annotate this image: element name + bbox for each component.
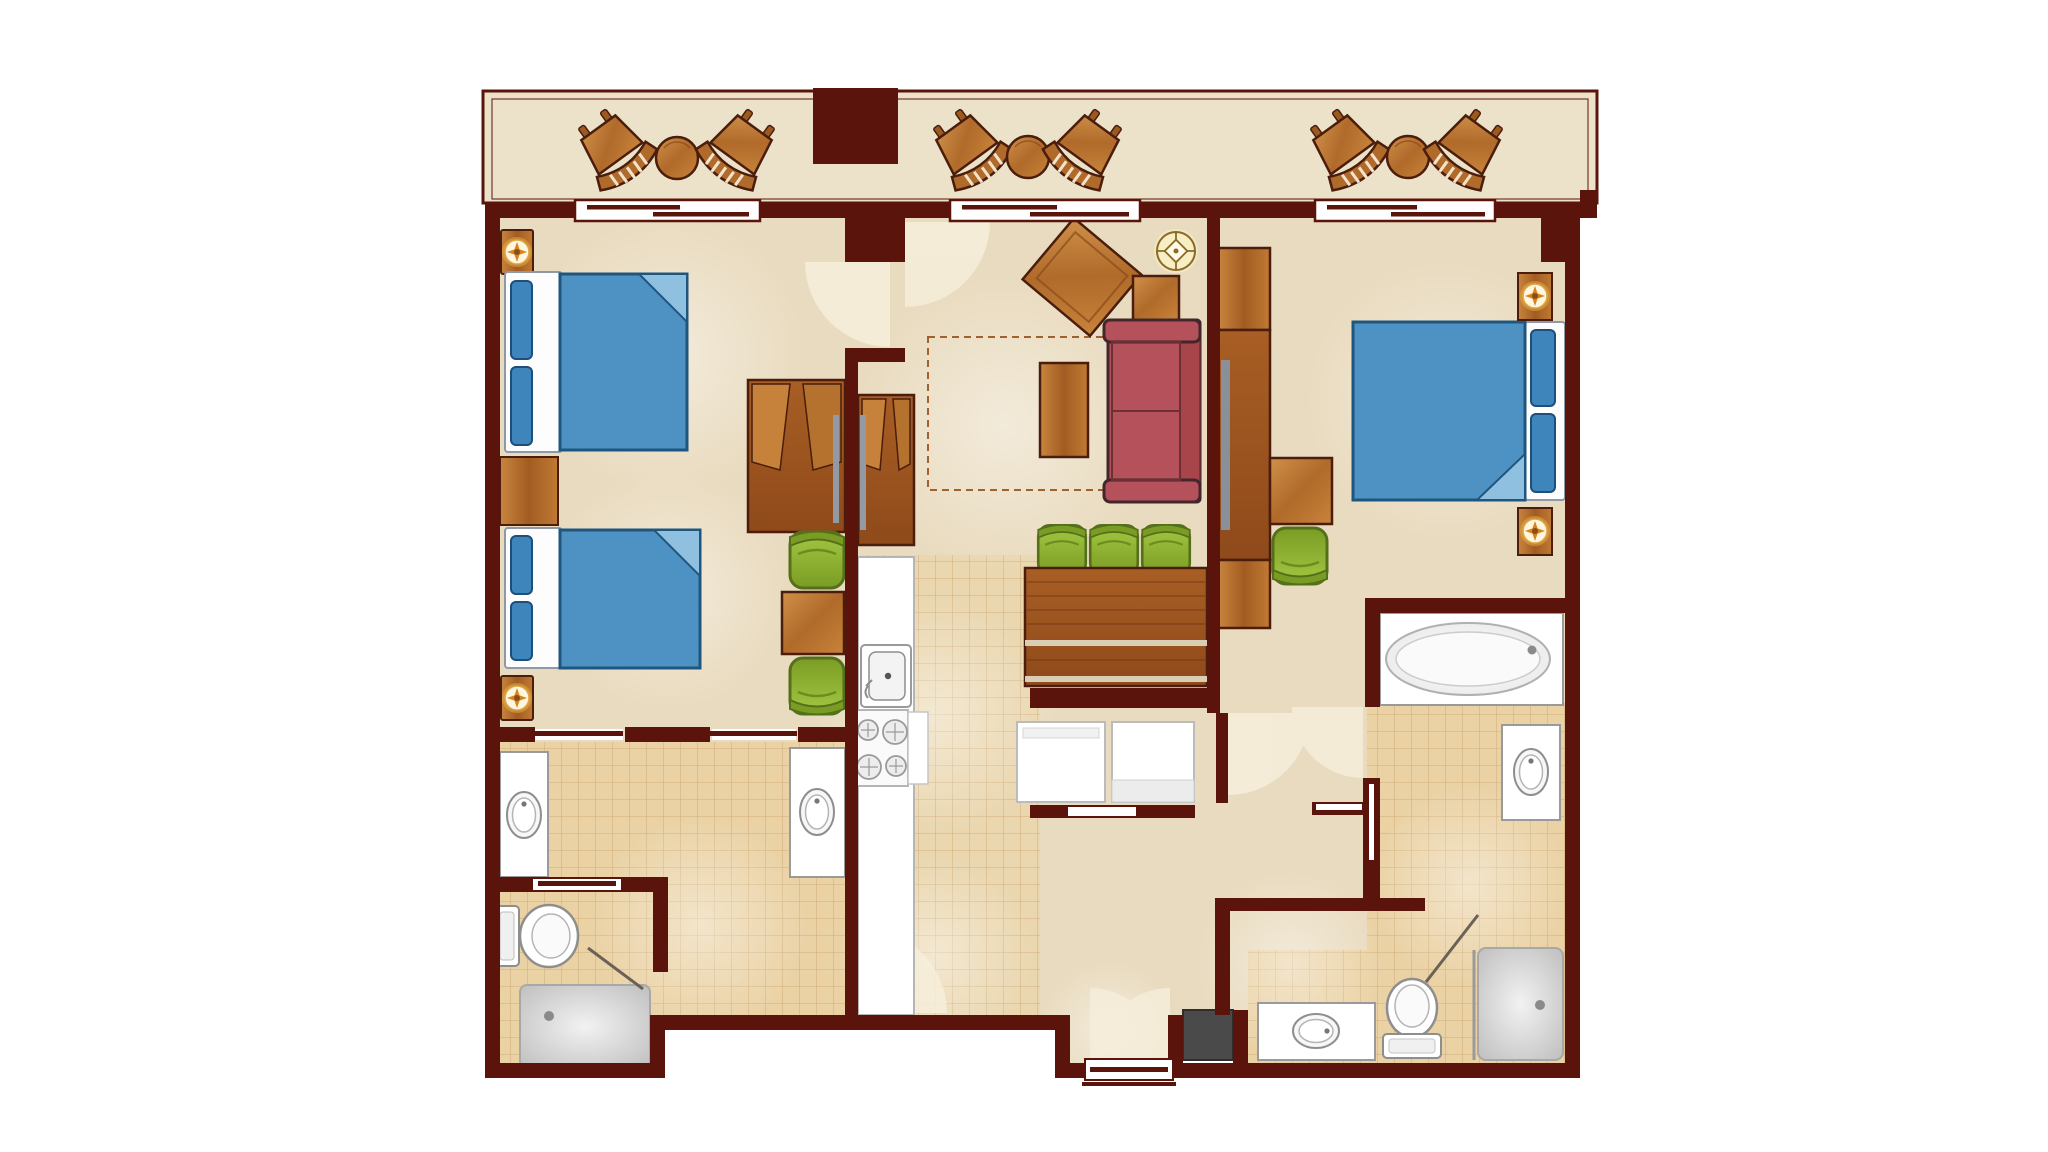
wall-bath2-top bbox=[1230, 898, 1425, 911]
wall-nook-right bbox=[1233, 1010, 1248, 1063]
side-table bbox=[782, 592, 844, 654]
wall-notch-tr bbox=[1580, 190, 1597, 218]
wall-pocket-b bbox=[625, 727, 710, 742]
toilet bbox=[1383, 979, 1441, 1058]
wall-bottom-mid bbox=[650, 1015, 1070, 1030]
queen-bed-2 bbox=[505, 528, 700, 668]
toilet bbox=[495, 905, 578, 967]
wall-laundry-top bbox=[1030, 688, 1207, 708]
wall-hall-stub bbox=[1216, 713, 1228, 803]
pocket-door-bed1-b bbox=[705, 729, 797, 740]
laundry-door-slit bbox=[1068, 807, 1136, 816]
wall-right bbox=[1565, 203, 1580, 1078]
wall-bed1-jog bbox=[845, 348, 905, 362]
wall-toilet-room-side bbox=[653, 877, 668, 972]
nightstand-with-sconce bbox=[1518, 508, 1552, 555]
ceiling-lamp bbox=[1154, 229, 1198, 273]
sleeper-sofa bbox=[1104, 320, 1200, 502]
window-right bbox=[1315, 200, 1495, 221]
pillow bbox=[511, 536, 532, 594]
utility-cube bbox=[1183, 1010, 1233, 1060]
wall-sconce bbox=[501, 676, 533, 720]
wall-left bbox=[485, 203, 500, 1078]
wall-sconce bbox=[501, 230, 533, 274]
sofa-arm bbox=[1104, 320, 1200, 342]
wall-pillar-tr bbox=[1541, 218, 1565, 262]
bench-gap bbox=[1025, 676, 1207, 682]
coffee-table bbox=[1040, 363, 1088, 457]
wall-tub-room-left bbox=[1365, 613, 1380, 707]
pantry-closet bbox=[858, 395, 914, 545]
barrel-chair bbox=[790, 658, 844, 715]
pocket-door-bed1-a bbox=[528, 729, 623, 740]
washer-panel bbox=[1023, 728, 1099, 738]
wall-bottom-left bbox=[485, 1063, 665, 1078]
shower bbox=[520, 985, 650, 1068]
window-left bbox=[575, 200, 760, 221]
pillow bbox=[511, 367, 532, 445]
wall-partition-left bbox=[845, 362, 858, 1015]
dining-table-and-bench bbox=[1025, 568, 1207, 686]
sofa-back bbox=[1180, 330, 1200, 492]
kitchen-sink bbox=[861, 645, 911, 707]
floor-plan-page bbox=[0, 0, 2048, 1152]
shower bbox=[1474, 948, 1563, 1060]
wall-vestibule-right bbox=[1168, 1015, 1183, 1063]
table-bench-gap bbox=[1025, 640, 1207, 646]
tv-screen bbox=[1221, 360, 1230, 530]
barrel-chair bbox=[790, 532, 844, 589]
bath-pocket-slit bbox=[1369, 784, 1374, 860]
laundry-closet bbox=[1017, 722, 1194, 802]
hall-door-slit bbox=[1316, 804, 1362, 810]
pillow bbox=[1531, 414, 1555, 492]
floor-plan-drawing bbox=[0, 0, 2048, 1152]
wall-bath2-left bbox=[1215, 898, 1230, 1015]
wall-pocket-c bbox=[798, 727, 845, 742]
armoire bbox=[748, 380, 845, 532]
dryer-panel bbox=[1112, 780, 1194, 802]
pillow bbox=[511, 281, 532, 359]
queen-bed-1 bbox=[505, 272, 687, 452]
pillow bbox=[511, 602, 532, 660]
king-bed bbox=[1353, 322, 1565, 500]
mirror-strip bbox=[860, 415, 866, 530]
mirror-strip bbox=[833, 415, 839, 523]
column-block bbox=[813, 88, 898, 164]
soaking-tub bbox=[1380, 613, 1563, 705]
wall-bed1-door-block bbox=[845, 218, 905, 262]
range-4-burner bbox=[852, 710, 928, 786]
side-table bbox=[1133, 276, 1179, 320]
media-cabinet bbox=[1218, 248, 1270, 628]
wall-tub-room-top bbox=[1365, 598, 1565, 613]
nightstand-with-sconce bbox=[1518, 273, 1552, 320]
pillow bbox=[1531, 330, 1555, 406]
barrel-chair bbox=[1273, 528, 1327, 585]
wall-partition-right bbox=[1207, 218, 1220, 713]
dining-area bbox=[1025, 525, 1207, 686]
desk bbox=[1270, 458, 1332, 524]
blanket bbox=[1353, 322, 1525, 500]
nightstand bbox=[500, 457, 558, 525]
sofa-arm bbox=[1104, 480, 1200, 502]
window-middle bbox=[950, 200, 1140, 221]
entry-threshold bbox=[1082, 1082, 1176, 1086]
pocket-door-toilet bbox=[533, 879, 621, 890]
